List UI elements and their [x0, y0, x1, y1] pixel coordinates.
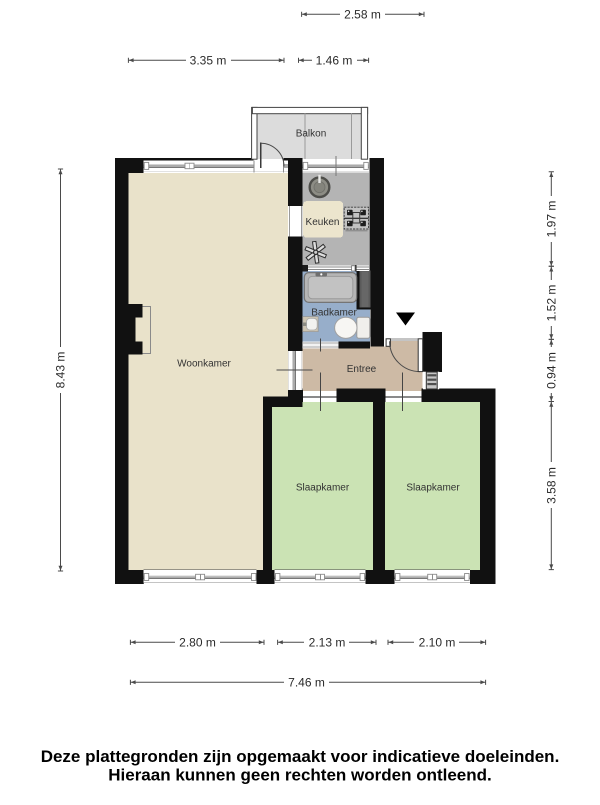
svg-text:7.46 m: 7.46 m [288, 675, 325, 689]
svg-text:2.58 m: 2.58 m [344, 7, 381, 21]
svg-text:Balkon: Balkon [296, 129, 327, 140]
svg-text:8.43 m: 8.43 m [54, 352, 68, 389]
svg-text:Hieraan kunnen geen rechten wo: Hieraan kunnen geen rechten worden ontle… [108, 766, 492, 785]
svg-text:1.52 m: 1.52 m [544, 285, 558, 322]
svg-text:Deze plattegronden zijn opgema: Deze plattegronden zijn opgemaakt voor i… [41, 747, 560, 766]
svg-text:Woonkamer: Woonkamer [177, 359, 231, 370]
svg-text:1.46 m: 1.46 m [316, 53, 353, 67]
svg-text:Slaapkamer: Slaapkamer [406, 483, 460, 494]
svg-text:Entree: Entree [347, 364, 377, 375]
svg-text:2.10 m: 2.10 m [419, 635, 456, 649]
svg-text:1.97 m: 1.97 m [544, 201, 558, 238]
svg-text:2.13 m: 2.13 m [309, 635, 346, 649]
svg-text:Keuken: Keuken [306, 217, 340, 228]
svg-text:3.35 m: 3.35 m [190, 53, 227, 67]
svg-text:Badkamer: Badkamer [311, 308, 357, 319]
svg-text:0.94 m: 0.94 m [544, 352, 558, 389]
svg-text:2.80 m: 2.80 m [179, 635, 216, 649]
svg-text:3.58 m: 3.58 m [544, 467, 558, 504]
svg-text:Slaapkamer: Slaapkamer [296, 483, 350, 494]
